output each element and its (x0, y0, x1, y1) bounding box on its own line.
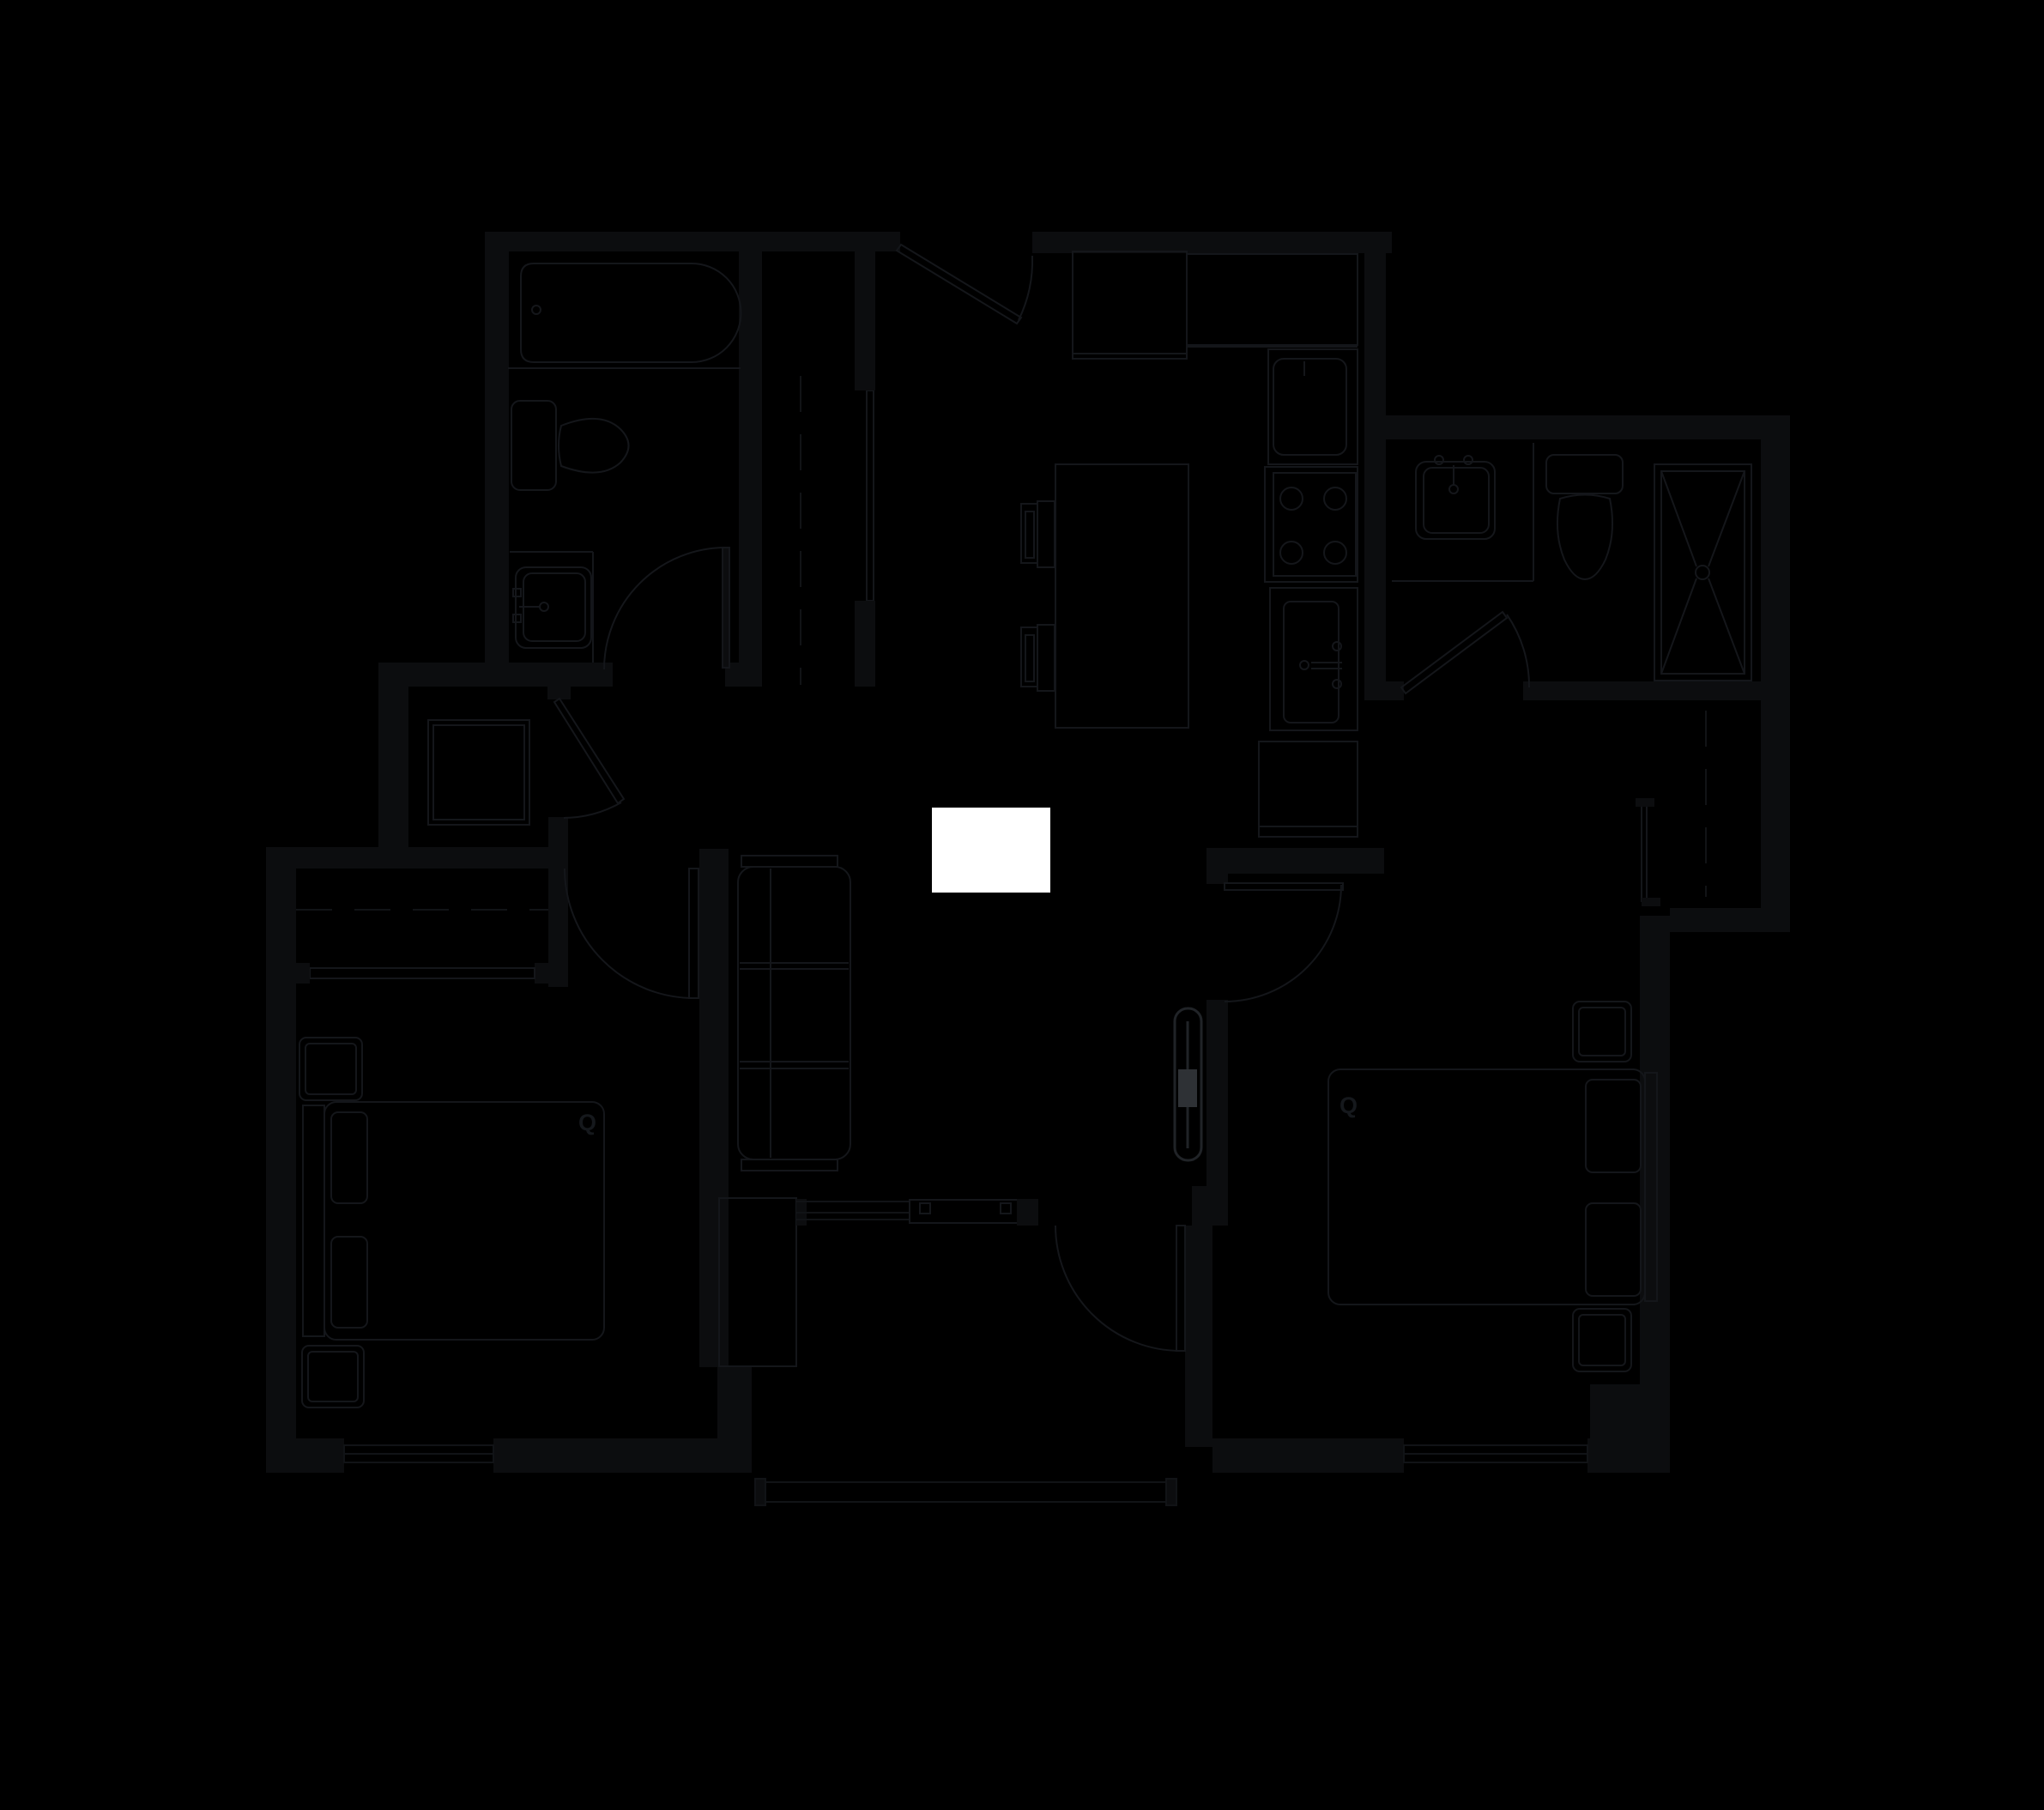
svg-text:Q: Q (1339, 1093, 1358, 1118)
svg-text:Q: Q (578, 1110, 596, 1135)
